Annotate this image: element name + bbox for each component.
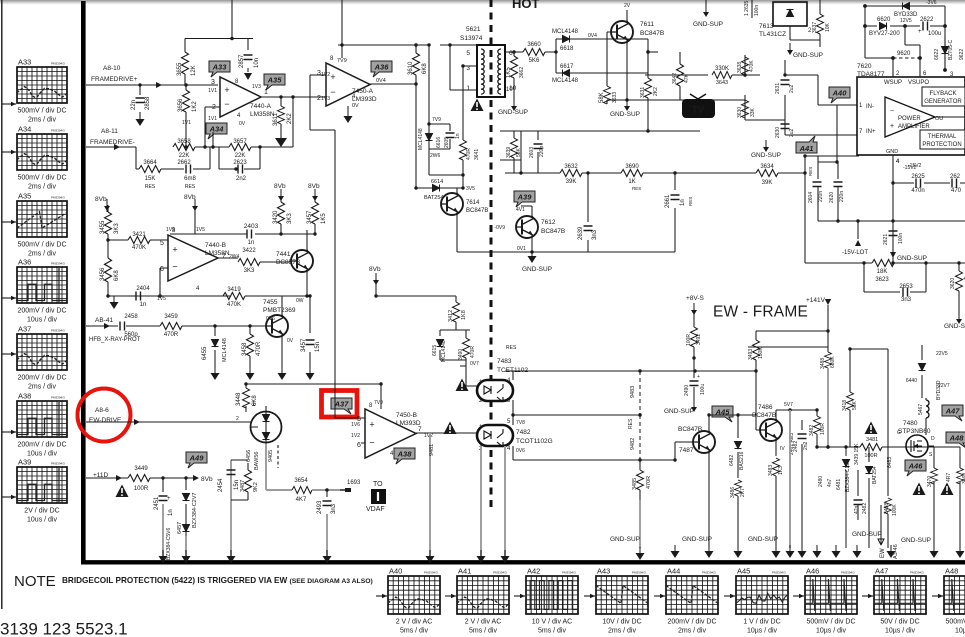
svg-text:−: − (172, 261, 177, 271)
svg-text:GND-SUP: GND-SUP (610, 536, 640, 543)
svg-text:1K: 1K (628, 179, 635, 185)
svg-text:A39: A39 (18, 458, 31, 467)
svg-text:39K: 39K (566, 179, 577, 185)
svg-text:5K6: 5K6 (529, 58, 540, 64)
svg-text:6615: 6615 (432, 345, 438, 356)
svg-text:3620: 3620 (950, 278, 956, 289)
svg-text:2ms / div: 2ms / div (608, 628, 637, 635)
svg-text:2u2: 2u2 (789, 84, 795, 93)
svg-text:200mV / div DC: 200mV / div DC (17, 375, 66, 382)
svg-text:15K: 15K (145, 176, 156, 182)
svg-text:22V5: 22V5 (936, 351, 948, 357)
svg-text:2404: 2404 (136, 286, 150, 292)
svg-text:EW - FRAME: EW - FRAME (713, 304, 808, 321)
svg-text:PM3394/3: PM3394/3 (51, 129, 65, 133)
svg-text:A37: A37 (334, 400, 350, 409)
svg-text:680K: 680K (830, 356, 836, 368)
svg-text:100R: 100R (686, 334, 692, 346)
svg-text:3K3: 3K3 (244, 268, 255, 274)
svg-text:500mV / div DC: 500mV / div DC (945, 619, 965, 626)
svg-text:2: 2 (236, 416, 239, 422)
svg-text:1n: 1n (248, 240, 255, 246)
svg-text:200mV / div DC: 200mV / div DC (17, 442, 66, 449)
svg-text:470n: 470n (911, 188, 924, 194)
svg-text:MCL4148: MCL4148 (441, 340, 447, 362)
svg-text:TL431CZ: TL431CZ (759, 31, 786, 38)
svg-text:8Vb: 8Vb (369, 266, 381, 273)
svg-text:3638: 3638 (737, 62, 743, 73)
svg-text:BRIDGECOIL PROTECTION (5422) I: BRIDGECOIL PROTECTION (5422) IS TRIGGERE… (62, 576, 373, 585)
svg-text:3637: 3637 (812, 22, 818, 33)
svg-text:+8V-S: +8V-S (686, 295, 705, 302)
svg-text:2403: 2403 (244, 223, 259, 230)
svg-text:7450-B: 7450-B (396, 412, 417, 419)
svg-text:2W4: 2W4 (229, 254, 240, 260)
svg-text:5ms / div: 5ms / div (538, 628, 567, 635)
svg-text:1V1: 1V1 (208, 116, 217, 122)
svg-text:9620: 9620 (897, 51, 911, 57)
svg-text:GND-SUP: GND-SUP (664, 408, 694, 415)
svg-text:PM3394/3: PM3394/3 (51, 462, 65, 466)
svg-text:A8-11: A8-11 (101, 128, 118, 135)
svg-text:6481: 6481 (836, 479, 842, 490)
svg-text:1: 1 (466, 85, 470, 92)
svg-text:100u: 100u (928, 31, 941, 37)
svg-text:100R: 100R (134, 486, 149, 492)
svg-text:WSUP: WSUP (884, 80, 902, 86)
svg-text:GND: GND (886, 149, 898, 155)
svg-text:RES: RES (628, 418, 634, 429)
svg-text:3421: 3421 (132, 232, 146, 238)
svg-text:330K: 330K (715, 66, 729, 72)
svg-text:10us / div: 10us / div (27, 451, 57, 458)
svg-text:3422: 3422 (242, 248, 256, 254)
svg-text:3483: 3483 (768, 465, 774, 476)
svg-text:500mV / div DC: 500mV / div DC (17, 242, 66, 249)
svg-text:6: 6 (509, 50, 513, 57)
svg-text:3V5: 3V5 (466, 186, 475, 192)
svg-text:6618: 6618 (560, 46, 574, 52)
svg-text:BZX384-C2V7: BZX384-C2V7 (192, 493, 198, 528)
svg-text:IV: IV (780, 446, 785, 452)
svg-text:200mV / div DC: 200mV / div DC (667, 619, 716, 626)
svg-text:7: 7 (418, 426, 422, 433)
svg-text:BZX384-C15: BZX384-C15 (845, 463, 851, 492)
svg-text:3485: 3485 (632, 478, 638, 490)
svg-text:RES: RES (688, 197, 693, 206)
svg-text:7V9: 7V9 (432, 117, 441, 123)
svg-text:A46: A46 (806, 567, 819, 576)
svg-text:8Vb: 8Vb (201, 476, 213, 483)
svg-text:+141V: +141V (806, 297, 826, 304)
svg-text:2ms / div: 2ms / div (28, 184, 57, 191)
svg-text:A33: A33 (212, 63, 228, 72)
svg-text:39K: 39K (762, 180, 773, 186)
svg-text:100R: 100R (864, 453, 877, 459)
svg-text:BAT254: BAT254 (424, 195, 443, 201)
svg-text:2V: 2V (624, 3, 631, 9)
svg-text:−: − (369, 437, 374, 447)
svg-text:3623: 3623 (875, 277, 889, 283)
svg-text:0V6: 0V6 (516, 448, 525, 454)
svg-text:12K: 12K (191, 65, 197, 76)
svg-text:-0V9: -0V9 (494, 225, 505, 231)
svg-text:−: − (890, 108, 894, 115)
svg-text:PMBT2369: PMBT2369 (263, 307, 296, 314)
svg-text:2623: 2623 (233, 160, 247, 166)
svg-text:4R7: 4R7 (946, 473, 952, 482)
svg-text:-15V2: -15V2 (903, 165, 917, 171)
svg-text:2630: 2630 (775, 127, 781, 138)
svg-text:1K3: 1K3 (778, 466, 784, 475)
svg-text:7483: 7483 (497, 358, 512, 365)
svg-text:2605: 2605 (444, 137, 450, 148)
svg-text:3642: 3642 (672, 73, 678, 84)
svg-text:4n7: 4n7 (827, 478, 833, 487)
svg-text:PM3394/3: PM3394/3 (632, 571, 646, 575)
svg-text:9482: 9482 (630, 438, 636, 450)
svg-text:220p: 220p (539, 146, 545, 157)
svg-text:A8-10: A8-10 (103, 65, 121, 72)
svg-text:A41: A41 (799, 144, 814, 153)
svg-text:MCL4148: MCL4148 (222, 338, 228, 362)
svg-text:BAT254: BAT254 (872, 466, 878, 484)
svg-text:BC847B: BC847B (678, 426, 702, 433)
svg-text:5621: 5621 (466, 26, 481, 33)
svg-text:1V2: 1V2 (351, 433, 360, 439)
svg-text:2604: 2604 (808, 192, 814, 203)
svg-text:A42: A42 (527, 567, 540, 576)
svg-text:2ms / div: 2ms / div (678, 628, 707, 635)
svg-text:7450-A: 7450-A (352, 88, 374, 95)
svg-text:2K7: 2K7 (740, 488, 746, 497)
svg-text:TO: TO (373, 481, 383, 488)
svg-text:0V4: 0V4 (376, 78, 386, 84)
svg-text:1V3: 1V3 (252, 84, 261, 90)
svg-text:3139 123 5523.1: 3139 123 5523.1 (0, 620, 128, 637)
svg-text:7V8: 7V8 (516, 420, 525, 426)
svg-text:TCOT1102G: TCOT1102G (516, 438, 553, 445)
svg-text:5: 5 (160, 240, 164, 247)
svg-text:A35: A35 (267, 76, 283, 85)
svg-text:A36: A36 (18, 258, 31, 267)
svg-text:FRAMEDRIVE+: FRAMEDRIVE+ (91, 76, 138, 83)
svg-text:2W6: 2W6 (430, 153, 441, 159)
svg-text:PM3394/3: PM3394/3 (51, 196, 65, 200)
svg-text:1K5: 1K5 (506, 67, 512, 78)
svg-text:3456: 3456 (100, 267, 106, 281)
svg-text:2n2: 2n2 (803, 441, 809, 450)
svg-text:IN-: IN- (866, 104, 874, 110)
svg-text:2482: 2482 (862, 503, 868, 514)
svg-text:2653: 2653 (899, 284, 913, 290)
svg-text:2480: 2480 (818, 476, 824, 487)
svg-text:2 V / div AC: 2 V / div AC (465, 619, 502, 626)
svg-text:22n: 22n (131, 100, 137, 110)
svg-text:6616: 6616 (436, 137, 442, 148)
svg-text:+: + (697, 374, 700, 380)
svg-text:A48: A48 (949, 434, 965, 443)
svg-text:10K: 10K (825, 22, 831, 32)
svg-text:3412: 3412 (448, 310, 454, 322)
svg-text:56K: 56K (852, 400, 858, 410)
svg-text:1V1: 1V1 (208, 88, 217, 94)
svg-text:100n: 100n (754, 5, 760, 16)
svg-text:+: + (890, 123, 894, 130)
svg-text:A41: A41 (458, 567, 471, 576)
svg-text:2639: 2639 (578, 226, 584, 240)
svg-text:A47: A47 (945, 407, 961, 416)
svg-text:6614: 6614 (431, 179, 443, 185)
svg-text:8Vb: 8Vb (308, 183, 320, 190)
svg-text:3493: 3493 (748, 349, 754, 360)
svg-text:0V1: 0V1 (517, 246, 526, 252)
svg-text:RES: RES (808, 167, 813, 176)
svg-text:6K8: 6K8 (422, 63, 428, 74)
svg-text:47n: 47n (854, 505, 860, 514)
svg-text:3: 3 (211, 79, 215, 86)
svg-text:2V / div DC: 2V / div DC (24, 508, 59, 515)
svg-text:3660: 3660 (527, 42, 541, 48)
svg-text:470K: 470K (132, 245, 146, 251)
svg-text:2631: 2631 (775, 83, 781, 94)
svg-text:10V / div DC: 10V / div DC (602, 619, 641, 626)
svg-text:7487: 7487 (679, 447, 694, 454)
svg-text:PM3394/3: PM3394/3 (51, 396, 65, 400)
svg-text:2458: 2458 (124, 314, 138, 320)
svg-text:2ms / div: 2ms / div (28, 251, 57, 258)
svg-text:TV: TV (692, 105, 705, 116)
svg-text:-15V-LOT: -15V-LOT (842, 250, 868, 256)
svg-text:A36: A36 (374, 63, 390, 72)
svg-text:2490: 2490 (684, 385, 690, 396)
svg-text:GND-SUP: GND-SUP (852, 531, 882, 538)
svg-text:7V9: 7V9 (337, 58, 347, 64)
svg-text:100n: 100n (898, 233, 904, 244)
svg-text:BC847B: BC847B (541, 228, 565, 235)
svg-text:7486: 7486 (758, 404, 773, 411)
svg-text:A47: A47 (875, 567, 888, 576)
svg-text:GND-SUP: GND-SUP (682, 536, 712, 543)
svg-text:3n3: 3n3 (901, 297, 912, 303)
svg-text:+: + (172, 245, 177, 255)
svg-text:3655: 3655 (177, 62, 183, 76)
svg-text:6: 6 (160, 266, 164, 273)
svg-text:9622: 9622 (959, 49, 965, 60)
svg-text:A35: A35 (18, 192, 31, 201)
svg-text:A33: A33 (18, 58, 31, 67)
svg-text:0V: 0V (287, 338, 294, 344)
svg-text:RES: RES (145, 184, 156, 190)
svg-text:PM3394/3: PM3394/3 (51, 62, 65, 66)
svg-text:THERMAL: THERMAL (928, 134, 957, 140)
svg-text:3419: 3419 (227, 287, 241, 293)
svg-text:3634: 3634 (760, 164, 774, 170)
svg-text:A39: A39 (517, 193, 533, 202)
svg-text:10us / div: 10us / div (27, 317, 57, 324)
svg-text:2662: 2662 (177, 160, 191, 166)
svg-text:GND-SUP: GND-SUP (901, 537, 931, 544)
svg-text:3690: 3690 (625, 164, 639, 170)
svg-text:A49: A49 (189, 454, 205, 463)
svg-text:0V7: 0V7 (470, 361, 479, 367)
svg-text:7440-A: 7440-A (250, 103, 272, 110)
svg-text:500mV / div DC: 500mV / div DC (17, 175, 66, 182)
svg-text:NOTE: NOTE (14, 573, 56, 590)
svg-text:200mV / div DC: 200mV / div DC (17, 308, 66, 315)
svg-text:HOT: HOT (512, 0, 540, 11)
svg-text:1K8: 1K8 (461, 310, 467, 320)
svg-text:3n3: 3n3 (331, 503, 337, 514)
svg-text:1n: 1n (140, 302, 147, 308)
svg-text:AMPLIFIER: AMPLIFIER (898, 124, 930, 130)
svg-text:3486: 3486 (730, 487, 736, 498)
svg-text:-3V6: -3V6 (926, 0, 937, 6)
svg-text:50V / div DC: 50V / div DC (880, 619, 919, 626)
svg-text:GND-SUP: GND-SUP (522, 266, 552, 273)
svg-text:10us / div: 10us / div (27, 517, 57, 524)
svg-text:EW-DRIVE: EW-DRIVE (89, 417, 122, 424)
svg-text:+: + (330, 72, 335, 82)
svg-text:PM3394/3: PM3394/3 (51, 262, 65, 266)
svg-text:10µs / div: 10µs / div (816, 628, 847, 635)
svg-text:6457: 6457 (177, 522, 183, 534)
svg-text:2493: 2493 (317, 500, 323, 514)
svg-text:BAW56: BAW56 (254, 452, 260, 470)
svg-text:3630: 3630 (737, 107, 743, 118)
svg-text:3611: 3611 (273, 112, 279, 126)
svg-text:7441: 7441 (276, 251, 291, 258)
svg-text:3449: 3449 (134, 466, 148, 472)
svg-text:AB-41: AB-41 (95, 317, 113, 324)
svg-text:22K: 22K (235, 153, 246, 159)
svg-text:RES: RES (506, 345, 517, 351)
svg-text:2482: 2482 (793, 441, 799, 452)
svg-text:+: + (224, 85, 229, 95)
svg-text:470: 470 (951, 188, 962, 194)
svg-text:0V4: 0V4 (588, 33, 597, 39)
svg-text:EW: EW (880, 548, 886, 558)
svg-text:1n: 1n (168, 509, 174, 516)
svg-text:100R: 100R (820, 423, 826, 435)
svg-text:LM358N: LM358N (250, 111, 275, 118)
svg-text:BC847B: BC847B (466, 208, 488, 214)
svg-text:1693: 1693 (347, 480, 361, 486)
svg-text:VDAF: VDAF (366, 506, 385, 513)
svg-text:3654: 3654 (294, 478, 308, 484)
svg-text:A37: A37 (18, 325, 31, 334)
svg-text:7480: 7480 (903, 420, 918, 427)
svg-text:10µs / div: 10µs / div (747, 628, 778, 635)
svg-text:3n3: 3n3 (592, 229, 598, 240)
svg-text:470R: 470R (470, 346, 476, 358)
svg-text:PM3394/3: PM3394/3 (702, 571, 716, 575)
svg-text:3459: 3459 (164, 314, 178, 320)
svg-text:A40: A40 (832, 89, 848, 98)
svg-text:9481: 9481 (429, 444, 435, 456)
svg-text:8Vb: 8Vb (184, 194, 196, 201)
svg-text:6K8: 6K8 (114, 270, 120, 281)
svg-text:12V5: 12V5 (900, 18, 912, 24)
svg-text:LM358N: LM358N (205, 250, 230, 257)
svg-text:BC847B: BC847B (640, 30, 664, 37)
svg-text:1V6: 1V6 (351, 422, 360, 428)
svg-text:5ms / div: 5ms / div (469, 628, 498, 635)
svg-text:18K: 18K (877, 269, 888, 275)
svg-text:3458: 3458 (242, 342, 248, 356)
svg-text:2858: 2858 (145, 96, 151, 110)
svg-text:2n2: 2n2 (236, 176, 247, 182)
svg-text:3488: 3488 (820, 358, 826, 369)
svg-text:GND-SUP: GND-SUP (897, 255, 927, 262)
svg-text:A40: A40 (389, 567, 402, 576)
svg-text:1 2635: 1 2635 (744, 0, 750, 16)
svg-text:500mV / div DC: 500mV / div DC (17, 108, 66, 115)
svg-text:MCL4148: MCL4148 (418, 128, 424, 150)
svg-text:3457: 3457 (307, 210, 313, 224)
svg-text:A34: A34 (18, 125, 31, 134)
svg-text:PM3394/3: PM3394/3 (772, 571, 786, 575)
svg-text:470K: 470K (227, 302, 241, 308)
svg-text:+: + (167, 496, 171, 502)
svg-text:−: − (330, 87, 335, 97)
svg-text:GND-SUP: GND-SUP (793, 52, 823, 59)
svg-text:0W: 0W (296, 298, 304, 304)
svg-text:LM393D: LM393D (352, 96, 377, 103)
svg-text:470R: 470R (466, 148, 472, 160)
svg-text:2451: 2451 (154, 496, 160, 510)
svg-text:7455: 7455 (263, 299, 278, 306)
svg-text:3632: 3632 (564, 164, 578, 170)
svg-text:BAS216: BAS216 (739, 451, 745, 470)
svg-text:6617: 6617 (560, 64, 574, 70)
svg-text:3455: 3455 (100, 220, 106, 234)
svg-text:BZT05-C: BZT05-C (948, 39, 954, 60)
svg-text:470R: 470R (164, 332, 179, 338)
svg-text:A8-6: A8-6 (95, 407, 109, 414)
svg-text:3487: 3487 (240, 480, 246, 492)
svg-text:2857: 2857 (239, 54, 245, 68)
svg-text:A43: A43 (597, 567, 610, 576)
svg-text:LM393D: LM393D (396, 420, 421, 427)
svg-text:2620: 2620 (829, 192, 835, 203)
svg-text:7620: 7620 (857, 63, 872, 70)
svg-text:2603: 2603 (529, 147, 535, 158)
svg-text:7482: 7482 (516, 429, 531, 436)
svg-text:8Vb: 8Vb (95, 196, 107, 203)
svg-text:2ms / div: 2ms / div (28, 384, 57, 391)
svg-text:GND-SUP: GND-SUP (498, 109, 528, 116)
svg-text:1n: 1n (680, 199, 686, 206)
svg-text:+: + (918, 29, 922, 35)
svg-text:PM3394/3: PM3394/3 (910, 571, 924, 575)
svg-text:PM3394/3: PM3394/3 (841, 571, 855, 575)
svg-text:1V1: 1V1 (182, 120, 191, 126)
svg-text:3439 15K: 3439 15K (854, 443, 860, 465)
svg-text:58K: 58K (599, 92, 605, 103)
svg-text:1n: 1n (455, 133, 461, 139)
svg-text:1V2: 1V2 (424, 433, 433, 439)
svg-text:VSUPO: VSUPO (908, 80, 929, 86)
svg-text:3610: 3610 (408, 61, 414, 75)
svg-text:2u2: 2u2 (789, 128, 795, 137)
svg-text:10 V / div AC: 10 V / div AC (532, 619, 572, 626)
svg-text:10: 10 (506, 87, 513, 93)
svg-text:1V5: 1V5 (157, 296, 166, 302)
svg-text:3448: 3448 (236, 392, 242, 406)
svg-text:PM3394/3: PM3394/3 (562, 571, 576, 575)
svg-text:6622: 6622 (934, 49, 940, 60)
